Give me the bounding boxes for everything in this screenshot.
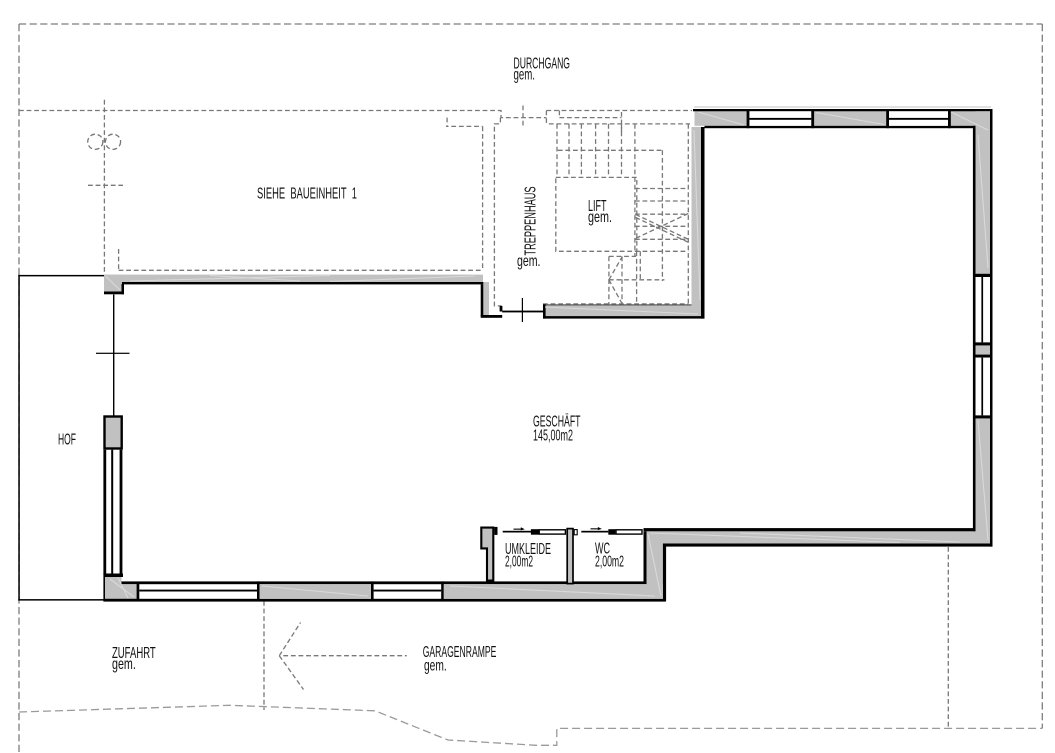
svg-text:145,00m2: 145,00m2 bbox=[533, 428, 573, 445]
svg-text:2,00m2: 2,00m2 bbox=[505, 554, 533, 571]
svg-text:gem.: gem. bbox=[424, 658, 447, 675]
svg-text:gem.: gem. bbox=[112, 656, 136, 673]
svg-text:gem.: gem. bbox=[517, 253, 541, 270]
svg-text:HOF: HOF bbox=[58, 432, 76, 449]
svg-text:gem.: gem. bbox=[588, 209, 612, 226]
svg-text:TREPPENHAUS: TREPPENHAUS bbox=[523, 187, 540, 256]
svg-text:2,00m2: 2,00m2 bbox=[595, 554, 624, 571]
svg-text:SIEHE BAUEINHEIT 1: SIEHE BAUEINHEIT 1 bbox=[257, 186, 357, 203]
svg-text:gem.: gem. bbox=[514, 67, 536, 84]
